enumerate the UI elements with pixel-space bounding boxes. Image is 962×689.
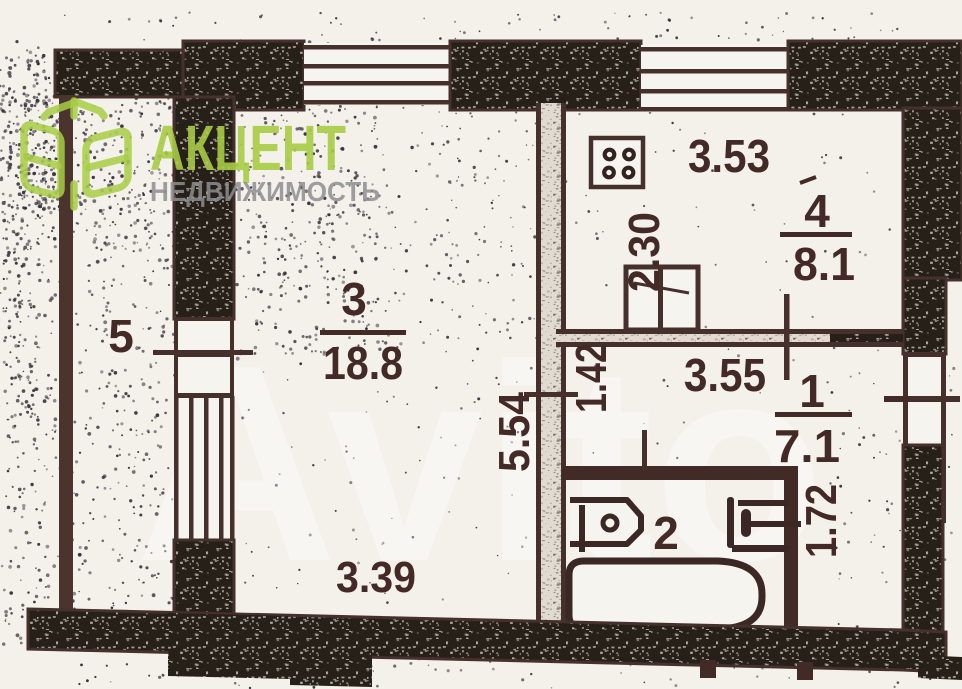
svg-text:2.30: 2.30 (620, 212, 669, 292)
svg-text:1.42: 1.42 (567, 343, 616, 413)
svg-text:5.54: 5.54 (490, 392, 539, 472)
svg-text:5: 5 (108, 310, 134, 362)
svg-text:3: 3 (341, 273, 367, 325)
svg-text:3.55: 3.55 (684, 349, 766, 401)
svg-text:8.1: 8.1 (793, 238, 855, 290)
svg-text:3.39: 3.39 (336, 553, 416, 602)
svg-text:18.8: 18.8 (323, 337, 403, 389)
svg-text:2: 2 (653, 507, 679, 559)
svg-text:3.53: 3.53 (688, 130, 770, 182)
svg-text:АКЦЕНТ: АКЦЕНТ (150, 112, 346, 184)
svg-text:1.72: 1.72 (797, 484, 846, 558)
svg-text:1: 1 (799, 365, 825, 417)
svg-text:4: 4 (804, 185, 830, 237)
svg-text:7.1: 7.1 (774, 420, 840, 472)
svg-text:НЕДВИЖИМОСТЬ: НЕДВИЖИМОСТЬ (150, 176, 380, 207)
